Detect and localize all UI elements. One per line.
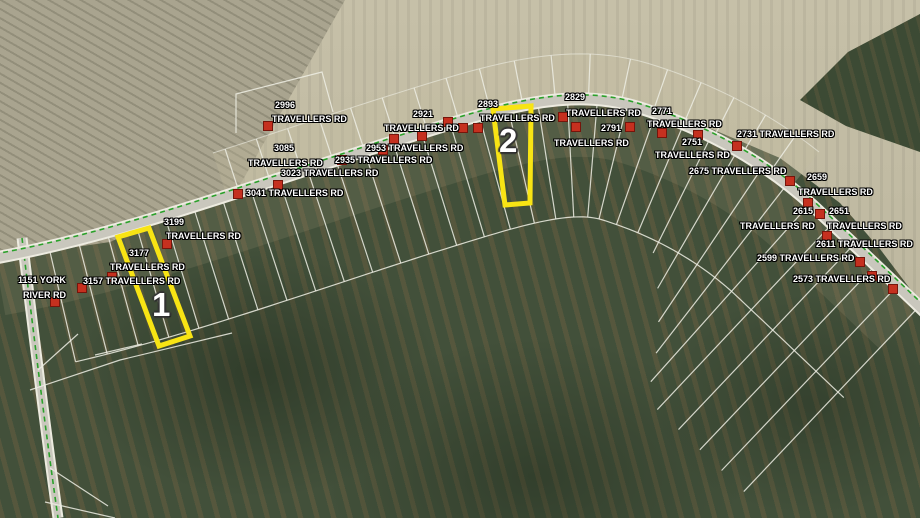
highlight-number-2: 2 (499, 124, 517, 158)
map-viewport[interactable]: 2996TRAVELLERS RD3085TRAVELLERS RD3023 T… (0, 0, 920, 518)
highlight-numbers-layer: 12 (0, 0, 920, 518)
highlight-number-1: 1 (152, 288, 170, 322)
